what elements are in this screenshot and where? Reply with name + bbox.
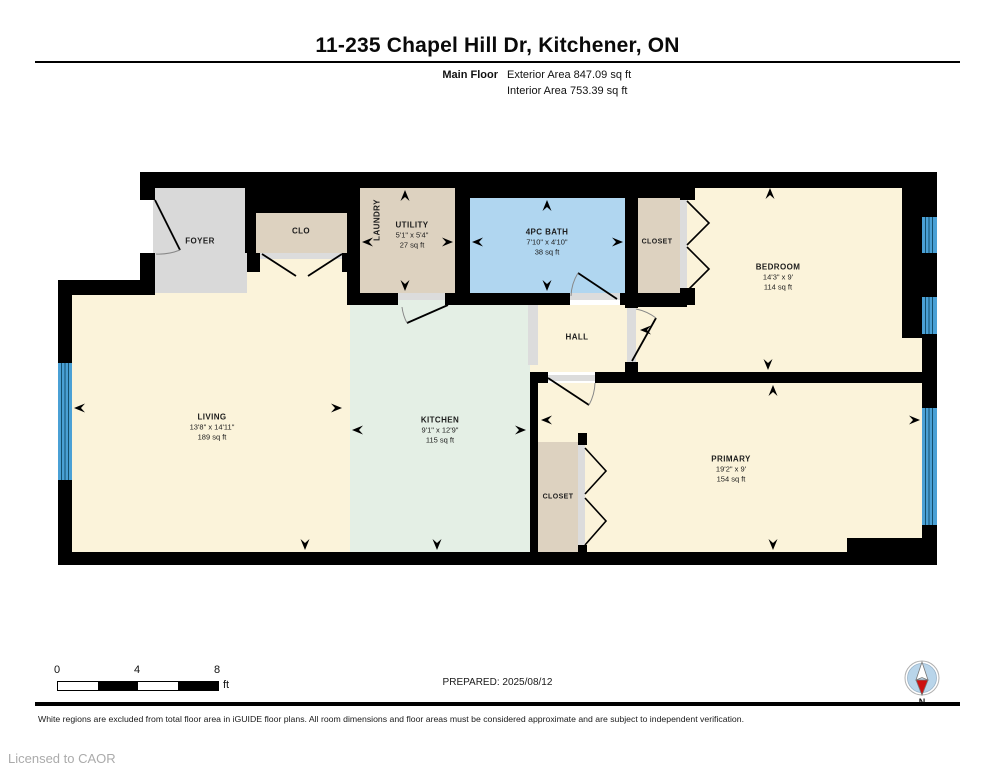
room-label-utility: UTILITY 5'1" x 5'4" 27 sq ft [395,221,428,250]
room-label-living: LIVING 13'8" x 14'11" 189 sq ft [190,413,235,442]
floor-plan-drawing [55,168,940,568]
prepared-date: PREPARED: 2025/08/12 [0,677,995,688]
room-label-hall: HALL [566,333,589,342]
scale-tick-0: 0 [45,664,69,676]
room-label-bath: 4PC BATH 7'10" x 4'10" 38 sq ft [526,228,569,257]
disclaimer-text: White regions are excluded from total fl… [38,714,968,724]
title-divider [35,61,960,63]
floor-plan: FOYER CLO LAUNDRY UTILITY 5'1" x 5'4" 27… [55,168,940,568]
scale-tick-8: 8 [205,664,229,676]
scale-tick-4: 4 [125,664,149,676]
footer-divider [35,702,960,706]
room-label-closet-top: CLOSET [642,239,673,246]
room-label-foyer: FOYER [185,237,215,246]
room-label-closet-bottom: CLOSET [543,494,574,501]
room-label-laundry: LAUNDRY [373,199,382,241]
room-label-kitchen: KITCHEN 9'1" x 12'9" 115 sq ft [421,416,459,445]
exterior-area-value: Exterior Area 847.09 sq ft [507,69,631,81]
licensed-text: Licensed to CAOR [8,751,116,766]
interior-area-value: Interior Area 753.39 sq ft [507,85,627,97]
floor-name-label: Main Floor [390,69,498,81]
room-label-primary: PRIMARY 19'2" x 9' 154 sq ft [711,455,750,484]
room-label-bedroom: BEDROOM 14'3" x 9' 114 sq ft [756,263,801,292]
page-title: 11-235 Chapel Hill Dr, Kitchener, ON [0,34,995,58]
room-label-clo: CLO [292,227,310,236]
